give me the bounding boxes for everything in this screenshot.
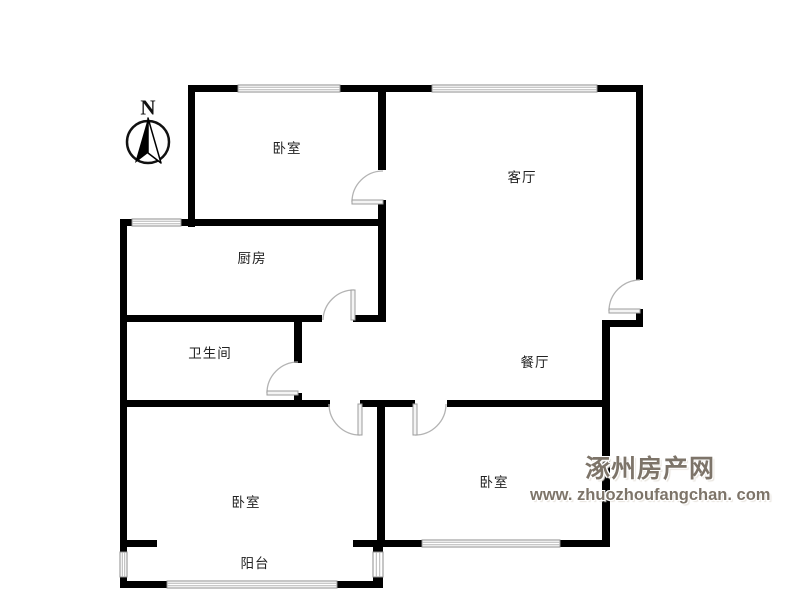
window-bedroom-north [238,85,340,92]
window-balcony-right [373,552,383,577]
room-label-dining-room: 餐厅 [521,351,550,371]
room-label-bedroom-north: 卧室 [273,137,302,157]
room-label-bedroom-southeast: 卧室 [480,471,509,491]
room-label-kitchen: 厨房 [238,247,267,267]
door-markers [267,171,640,435]
window-kitchen [132,219,181,226]
watermark-site-name: 涿州房产网 [530,456,770,484]
window-balcony-left [120,552,127,577]
window-bedroom-southeast [422,540,560,547]
door-bedroom-north [352,171,383,204]
door-kitchen [323,290,355,320]
room-label-living-room: 客厅 [508,166,537,186]
watermark-url: www. zhuozhoufangchan. com [530,486,770,504]
door-bedroom-southwest [329,404,362,435]
room-label-balcony: 阳台 [241,552,270,572]
walls [120,85,643,588]
compass-north-label: N [140,96,155,121]
door-bedroom-southeast [413,404,446,435]
floor-plan: N 卧室 客厅 厨房 卫生间 餐厅 卧室 卧室 阳台 涿州房产网 www. zh… [0,0,800,600]
site-watermark: 涿州房产网 www. zhuozhoufangchan. com [530,456,770,504]
door-living-room [609,280,640,313]
door-bathroom [267,362,298,395]
room-label-bedroom-southwest: 卧室 [232,491,261,511]
floor-plan-drawing [0,0,800,600]
room-label-bathroom: 卫生间 [188,342,232,362]
north-compass-icon [127,118,169,163]
window-balcony-front [167,581,337,588]
window-living-room [432,85,597,92]
